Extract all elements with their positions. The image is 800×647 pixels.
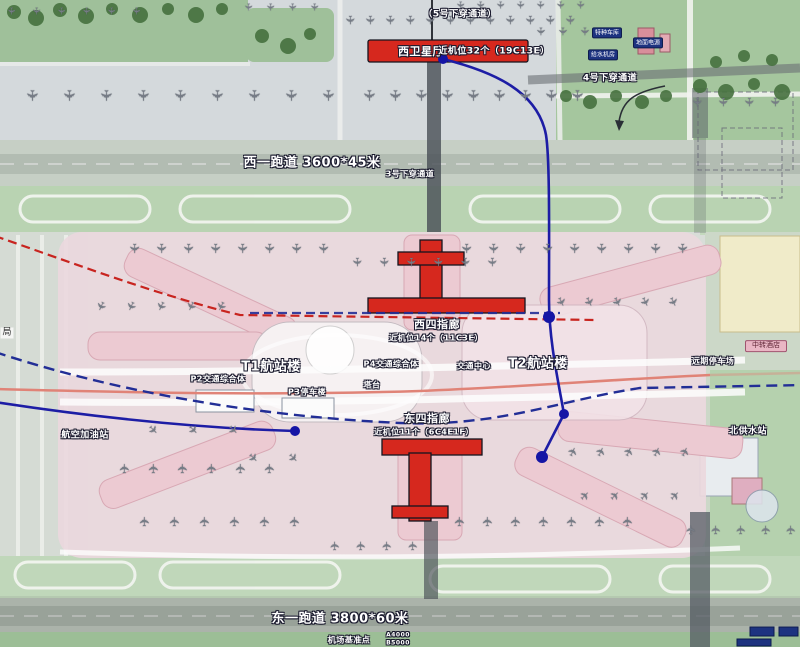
label-traffic-center: 交通中心	[457, 361, 491, 372]
label-airport-datum: 机场基准点	[328, 635, 371, 646]
label-runway-east: 东一跑道 3800*60米	[271, 608, 408, 627]
label-p2-complex: P2交通综合体	[191, 374, 246, 385]
label-west-pier-stands: 近机位14个（11C3E）	[389, 333, 483, 344]
label-east-pier-stands: 近机位11个（6C4E1F）	[374, 427, 474, 438]
label-terminal-t2: T2航站楼	[508, 353, 567, 372]
map-canvas	[0, 0, 800, 647]
tag-special-vehicle-garage: 特种车库	[593, 28, 621, 37]
tag-ground-power: 地面电源	[634, 38, 662, 47]
label-datum-b: B5000	[386, 640, 410, 647]
label-runway-west: 西一跑道 3600*45米	[243, 152, 380, 171]
label-tunnel-5: （5号下穿通道）	[423, 7, 496, 20]
label-tunnel-3: 3号下穿通道	[386, 169, 435, 180]
label-far-parking: 远期停车场	[692, 356, 735, 367]
label-west-pier: 西四指廊	[414, 316, 460, 332]
transit-hotel-box: 中转酒店	[745, 340, 787, 352]
label-west-satellite: 西卫星厅	[398, 43, 444, 59]
label-tunnel-4: 4号下穿通道	[583, 71, 637, 84]
label-control-tower: 塔台	[364, 380, 381, 391]
label-p4-complex: P4交通综合体	[364, 359, 419, 370]
label-east-pier: 东四指廊	[404, 410, 450, 426]
label-north-water-station: 北供水站	[729, 424, 767, 437]
label-terminal-t1: T1航站楼	[241, 356, 300, 375]
label-west-satellite-stands: 近机位32个（19C13E）	[438, 44, 549, 57]
tag-water-supply-room: 给水机房	[589, 50, 617, 59]
label-left-edge-partial: 局	[0, 328, 13, 339]
label-datum-a: A4000	[386, 632, 410, 639]
airport-master-plan-map: ✈✈✈✈✈✈✈✈✈✈✈✈✈✈✈✈✈✈✈✈✈✈✈✈✈✈✈✈✈✈✈✈✈✈✈✈✈✈✈✈…	[0, 0, 800, 647]
label-p3-parking: P3停车楼	[288, 387, 326, 398]
label-fuel-station: 航空加油站	[61, 428, 109, 441]
